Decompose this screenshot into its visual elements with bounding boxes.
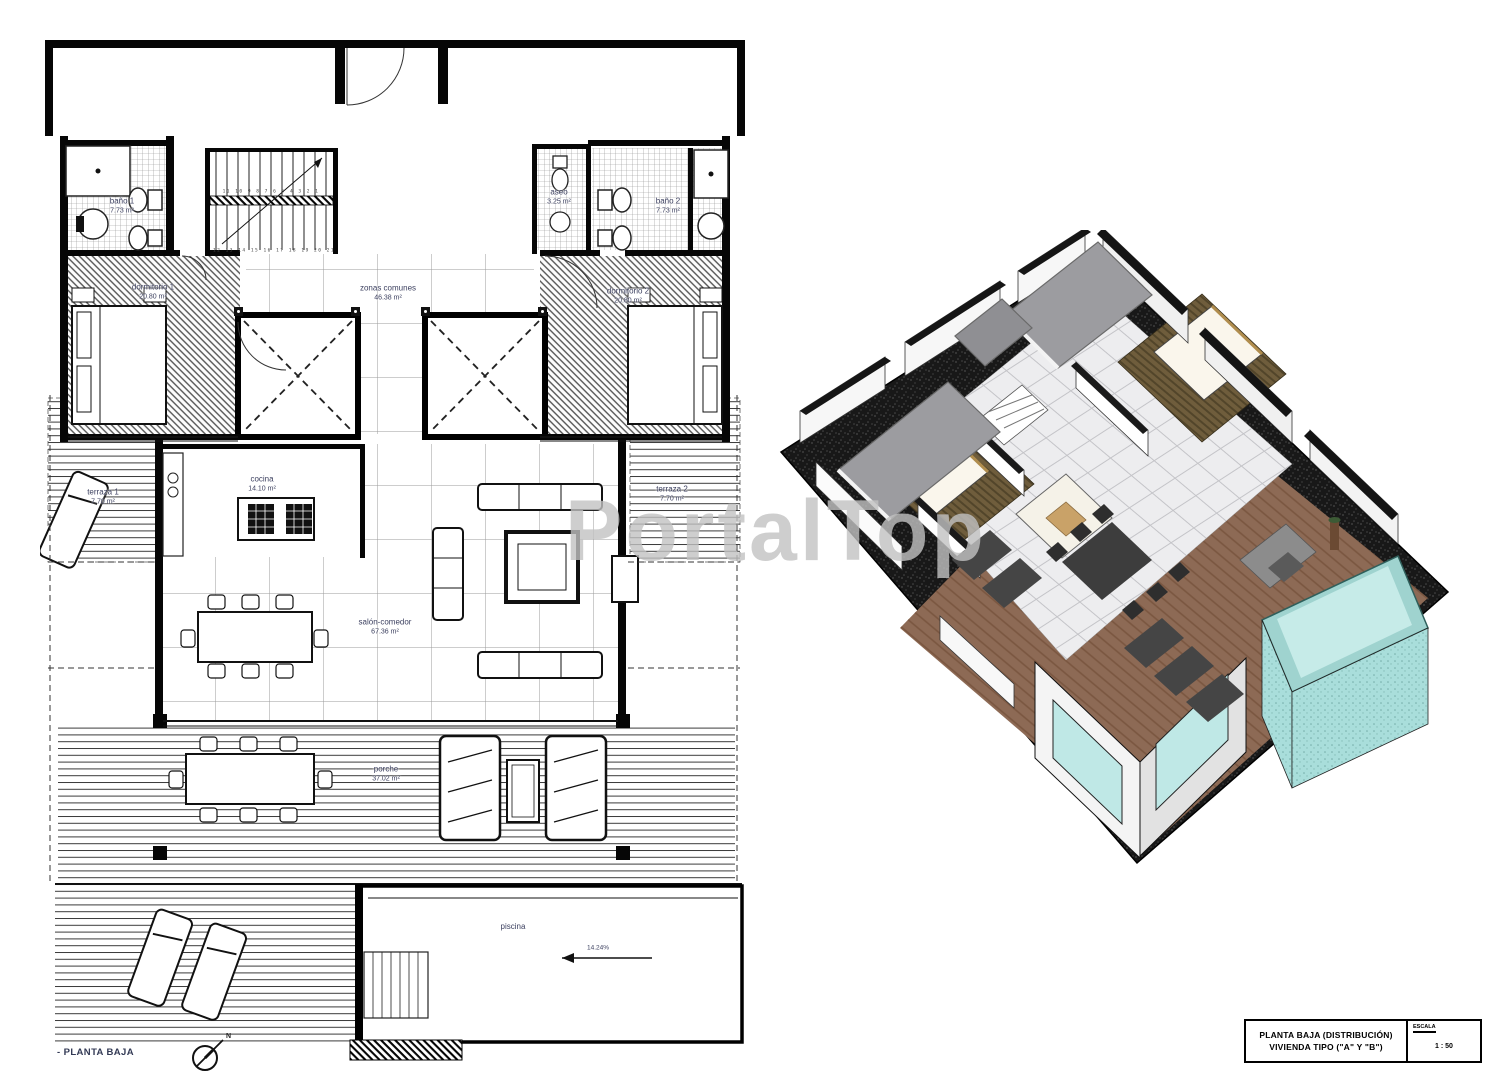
- room-name: cocina: [250, 474, 273, 483]
- room-name: salón-comedor: [359, 617, 412, 626]
- pool-slope-label: 14.24%: [587, 945, 609, 952]
- bed-1: [72, 288, 166, 424]
- stair-numbers-bottom: 12 13 14 15 16 17 18 19 20 21: [213, 249, 335, 254]
- title-block-scale: ESCALA 1 : 50: [1408, 1021, 1480, 1061]
- patio-2: [425, 315, 545, 437]
- room-label-terraza2: terraza 2 7.70 m²: [656, 484, 688, 503]
- pool-hatch-strip: [350, 1040, 462, 1060]
- pool-steps: [364, 952, 428, 1018]
- scale-label: ESCALA: [1413, 1024, 1436, 1033]
- room-area: 46.38 m²: [360, 294, 416, 303]
- room-area: 20.80 m²: [607, 297, 649, 306]
- north-arrow: [193, 1040, 223, 1070]
- plan-footer-label: - PLANTA BAJA: [57, 1047, 134, 1058]
- room-name: porche: [374, 764, 398, 773]
- stair-numbers-top: 11 10 9 8 7 6 5 4 3 2 1: [223, 190, 320, 195]
- room-area: 7.73 m²: [110, 207, 134, 216]
- scale-value: 1 : 50: [1408, 1043, 1480, 1050]
- room-label-bano2: baño 2 7.73 m²: [656, 196, 680, 215]
- room-area: 7.70 m²: [87, 498, 119, 507]
- media-unit: [612, 556, 638, 602]
- floor-plan-drawing: [40, 35, 750, 1075]
- room-label-piscina: piscina: [501, 922, 526, 932]
- room-name: terraza 2: [656, 484, 688, 493]
- room-area: 20.80 m²: [132, 293, 174, 302]
- porch-sofa-right: [546, 736, 606, 840]
- porch-sofa-left: [440, 736, 500, 840]
- room-label-cocina: cocina 14.10 m²: [248, 474, 276, 493]
- room-name: baño 2: [656, 196, 680, 205]
- planter-3d: [1329, 517, 1341, 550]
- room-name: dormitorio 2: [607, 286, 649, 295]
- title-block-main: PLANTA BAJA (DISTRIBUCIÓN) VIVIENDA TIPO…: [1246, 1021, 1408, 1061]
- room-name: piscina: [501, 922, 526, 931]
- room-label-aseo: aseo 3.25 m²: [547, 187, 571, 206]
- room-label-salon-comedor: salón-comedor 67.36 m²: [359, 617, 412, 636]
- room-name: terraza 1: [87, 487, 119, 496]
- room-area: 14.10 m²: [248, 485, 276, 494]
- room-area: 67.36 m²: [359, 628, 412, 637]
- title-block: PLANTA BAJA (DISTRIBUCIÓN) VIVIENDA TIPO…: [1244, 1019, 1482, 1063]
- room-label-bano1: baño 1 7.73 m²: [110, 196, 134, 215]
- room-area: 3.25 m²: [547, 198, 571, 207]
- room-name: dormitorio 1: [132, 282, 174, 291]
- patio-1: [238, 315, 358, 437]
- room-label-dormitorio2: dormitorio 2 20.80 m²: [607, 286, 649, 305]
- north-label: N: [226, 1033, 231, 1040]
- pool: [350, 884, 742, 1060]
- room-area: 7.73 m²: [656, 207, 680, 216]
- bed-2: [628, 288, 722, 424]
- room-label-dormitorio1: dormitorio 1 20.80 m²: [132, 282, 174, 301]
- staircase: [210, 152, 333, 250]
- room-name: aseo: [550, 187, 567, 196]
- axonometric-view-drawing: [760, 230, 1460, 880]
- room-label-porche: porche 37.02 m²: [372, 764, 400, 783]
- room-label-terraza1: terraza 1 7.70 m²: [87, 487, 119, 506]
- room-name: zonas comunes: [360, 283, 416, 292]
- title-line-1: PLANTA BAJA (DISTRIBUCIÓN): [1259, 1030, 1392, 1040]
- room-area: 37.02 m²: [372, 775, 400, 784]
- room-area: 7.70 m²: [656, 495, 688, 504]
- room-label-zonas-comunes: zonas comunes 46.38 m²: [360, 283, 416, 302]
- title-line-2: VIVIENDA TIPO ("A" Y "B"): [1269, 1042, 1383, 1052]
- drawing-sheet: baño 1 7.73 m² aseo 3.25 m² baño 2 7.73 …: [0, 0, 1501, 1080]
- room-name: baño 1: [110, 196, 134, 205]
